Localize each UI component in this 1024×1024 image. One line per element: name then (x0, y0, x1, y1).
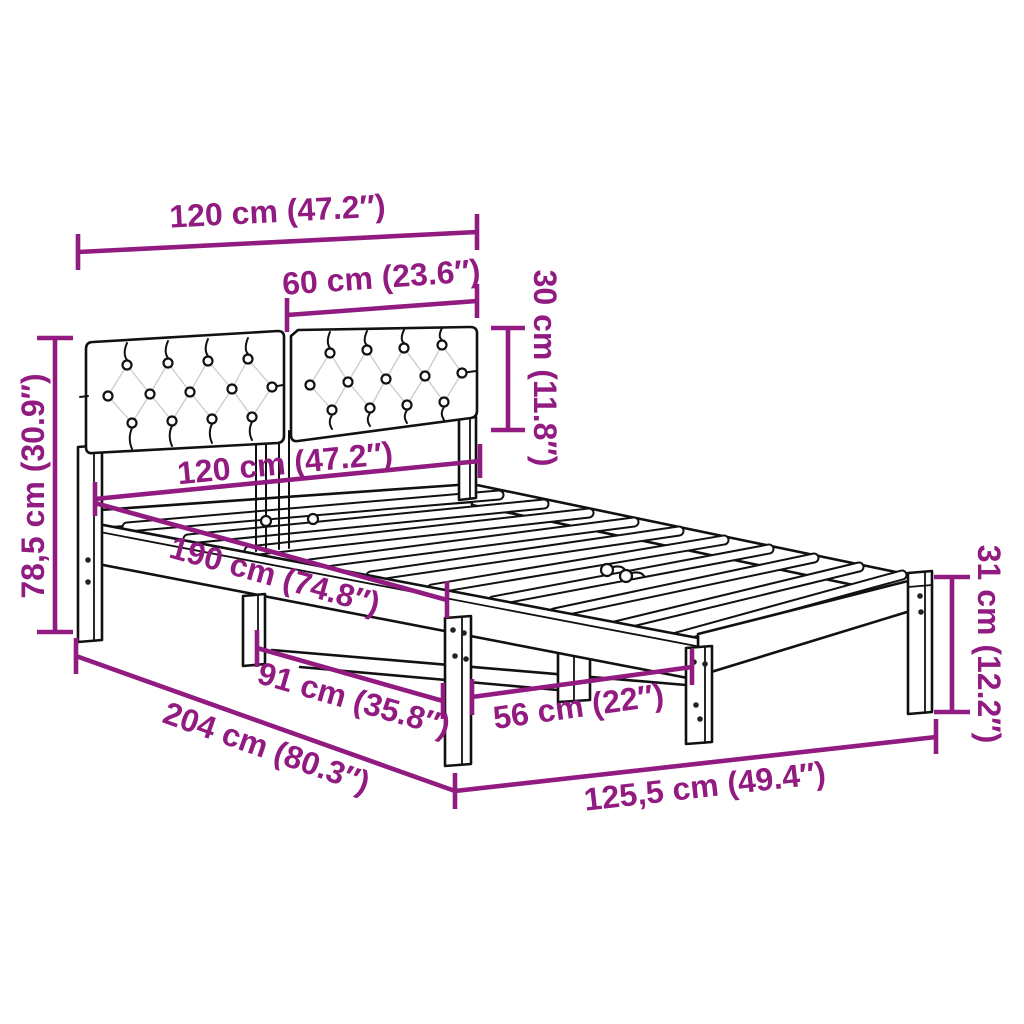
middle-leg (445, 616, 471, 766)
bed-frame-dimension-diagram: 120 cm (47.2″) 60 cm (23.6″) 30 cm (11.8… (0, 0, 1024, 1024)
headboard-right-post (459, 417, 476, 500)
dimension-headboard-height (491, 328, 525, 430)
label-headboard-panel-width: 60 cm (23.6″) (281, 252, 482, 302)
diagram-canvas: 120 cm (47.2″) 60 cm (23.6″) 30 cm (11.8… (0, 0, 1024, 1024)
label-total-height: 78,5 cm (30.9″) (15, 373, 51, 598)
dimension-leg-height (934, 577, 970, 712)
foot-far-leg (908, 571, 932, 714)
label-headboard-height: 30 cm (11.8″) (527, 270, 563, 467)
label-leg-height: 31 cm (12.2″) (971, 545, 1007, 744)
headboard-cushion (80, 327, 477, 453)
headboard-left-post-leg (78, 445, 102, 642)
label-top-width: 120 cm (47.2″) (168, 187, 386, 234)
